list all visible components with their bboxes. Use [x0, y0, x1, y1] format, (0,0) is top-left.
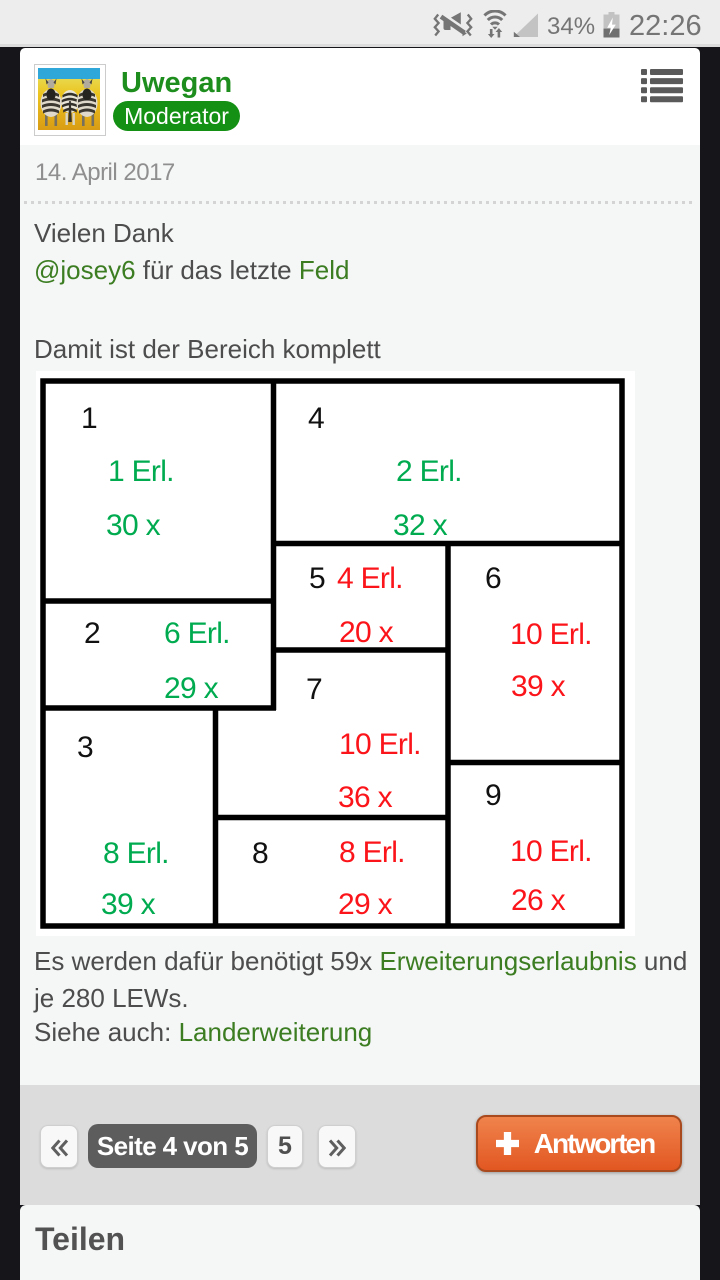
svg-text:9: 9	[485, 779, 501, 812]
svg-text:26 x: 26 x	[511, 884, 566, 917]
svg-text:2 Erl.: 2 Erl.	[396, 455, 462, 488]
svg-text:20 x: 20 x	[339, 616, 394, 649]
svg-text:36 x: 36 x	[338, 781, 393, 814]
svg-text:29 x: 29 x	[164, 672, 219, 705]
svg-text:2: 2	[84, 617, 100, 650]
svg-text:8 Erl.: 8 Erl.	[339, 836, 405, 869]
svg-text:7: 7	[306, 673, 322, 706]
svg-text:3: 3	[77, 731, 93, 764]
svg-text:39 x: 39 x	[101, 888, 156, 921]
svg-text:4: 4	[308, 402, 324, 435]
svg-text:8 Erl.: 8 Erl.	[103, 837, 169, 870]
svg-text:10 Erl.: 10 Erl.	[510, 835, 592, 868]
svg-text:32 x: 32 x	[393, 509, 448, 542]
svg-text:29 x: 29 x	[338, 888, 393, 921]
svg-text:5: 5	[309, 562, 325, 595]
svg-text:6 Erl.: 6 Erl.	[164, 617, 230, 650]
svg-text:10 Erl.: 10 Erl.	[339, 728, 421, 761]
svg-text:10 Erl.: 10 Erl.	[510, 618, 592, 651]
svg-text:1 Erl.: 1 Erl.	[108, 455, 174, 488]
svg-text:30 x: 30 x	[106, 509, 161, 542]
svg-text:4 Erl.: 4 Erl.	[337, 562, 403, 595]
svg-text:1: 1	[81, 402, 97, 435]
svg-text:39 x: 39 x	[511, 670, 566, 703]
svg-text:8: 8	[252, 837, 268, 870]
svg-text:6: 6	[485, 562, 501, 595]
